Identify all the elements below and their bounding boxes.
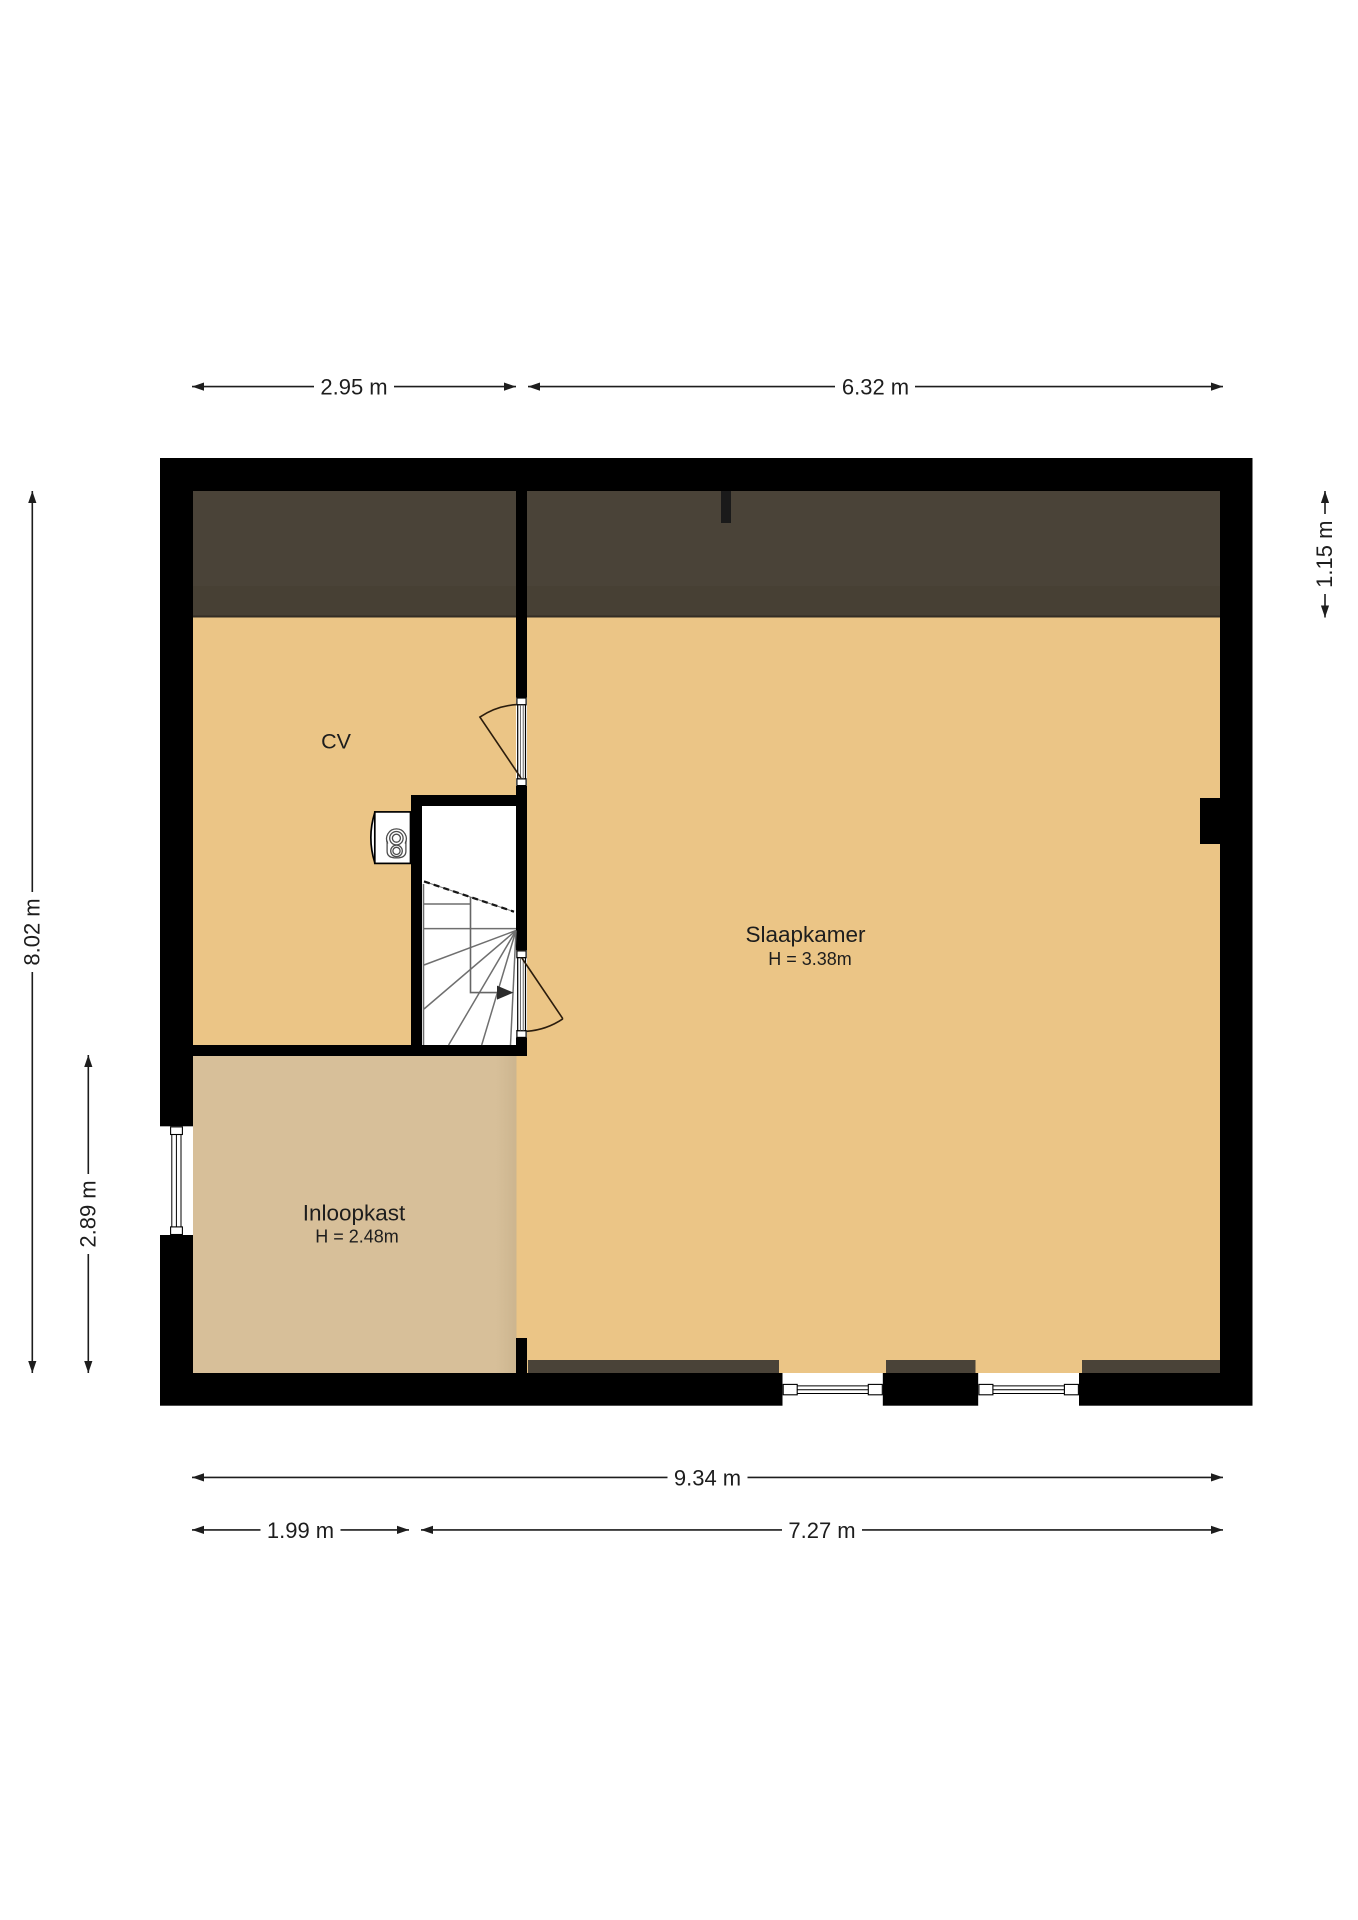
svg-text:Inloopkast: Inloopkast	[303, 1201, 406, 1226]
svg-text:2.95 m: 2.95 m	[320, 375, 387, 400]
svg-text:CV: CV	[321, 730, 352, 754]
svg-text:6.32 m: 6.32 m	[842, 375, 909, 400]
svg-text:2.89 m: 2.89 m	[75, 1180, 100, 1247]
svg-text:1.99 m: 1.99 m	[267, 1518, 334, 1543]
svg-text:8.02 m: 8.02 m	[19, 898, 44, 965]
svg-text:Slaapkamer: Slaapkamer	[745, 922, 866, 947]
svg-text:1.15 m: 1.15 m	[1312, 521, 1337, 588]
svg-text:9.34 m: 9.34 m	[674, 1465, 741, 1490]
svg-text:7.27 m: 7.27 m	[788, 1518, 855, 1543]
svg-text:H = 3.38m: H = 3.38m	[768, 949, 852, 969]
svg-text:H = 2.48m: H = 2.48m	[315, 1227, 399, 1247]
